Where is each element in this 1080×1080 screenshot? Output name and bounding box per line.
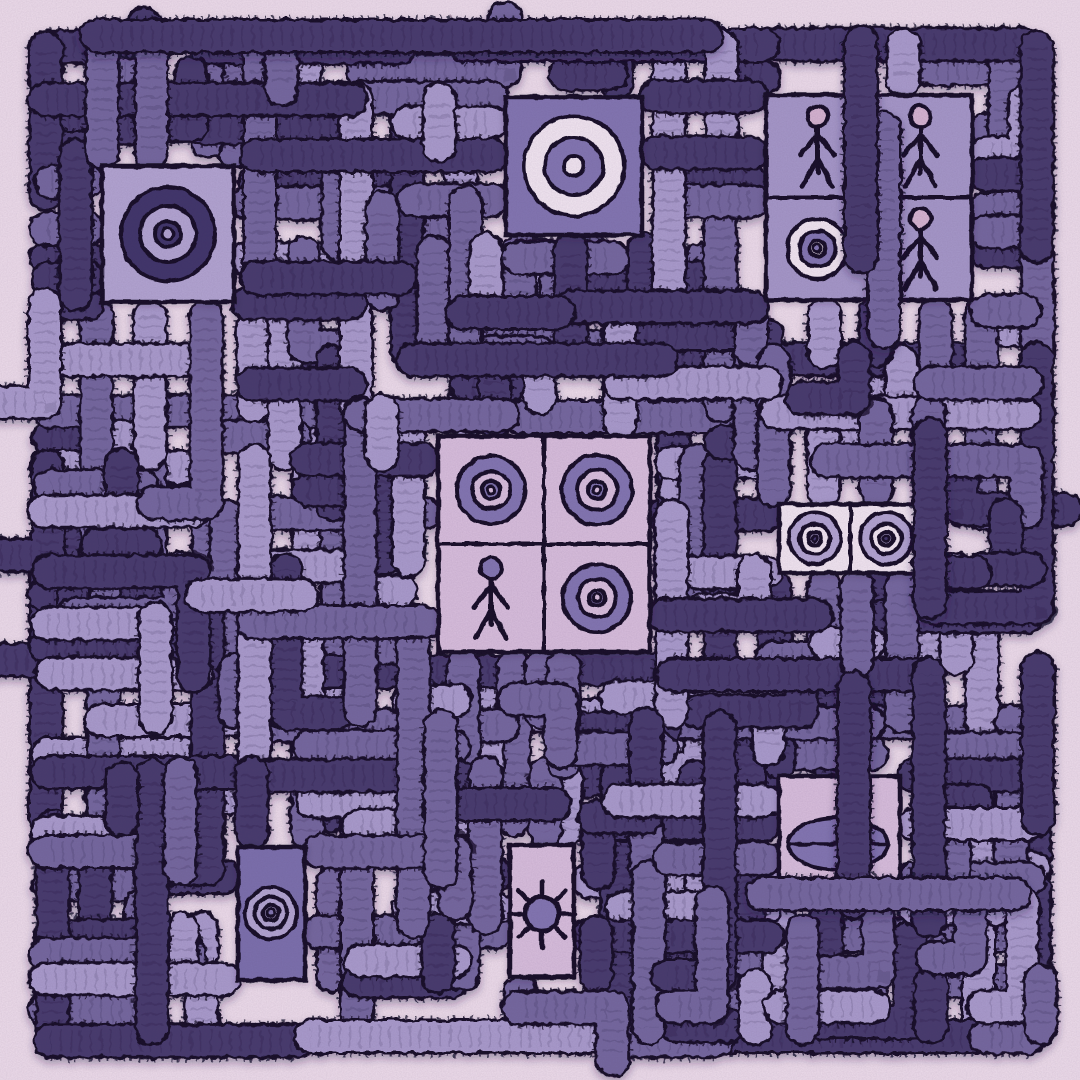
top-center-target-panel <box>506 97 642 235</box>
right-eye-strip-panel <box>779 504 922 573</box>
target-icon <box>121 187 215 281</box>
target-icon <box>789 513 841 565</box>
artwork-canvas <box>0 0 1080 1080</box>
center-symbol-grid-panel <box>438 436 650 652</box>
sun-icon <box>509 881 575 947</box>
bottom-center-sun-panel <box>509 845 575 977</box>
target-icon <box>457 456 525 524</box>
target-icon <box>245 887 297 939</box>
target-icon <box>563 564 631 632</box>
top-left-target-panel <box>102 166 234 302</box>
target-icon <box>562 455 632 525</box>
target-icon <box>860 513 912 565</box>
bottom-left-target-panel <box>238 847 305 980</box>
page: { "palette": { "background": "#eeddeb", … <box>0 0 1080 1080</box>
target-icon <box>524 116 624 216</box>
knitted-maze-illustration <box>0 0 1080 1080</box>
target-icon <box>788 219 848 279</box>
